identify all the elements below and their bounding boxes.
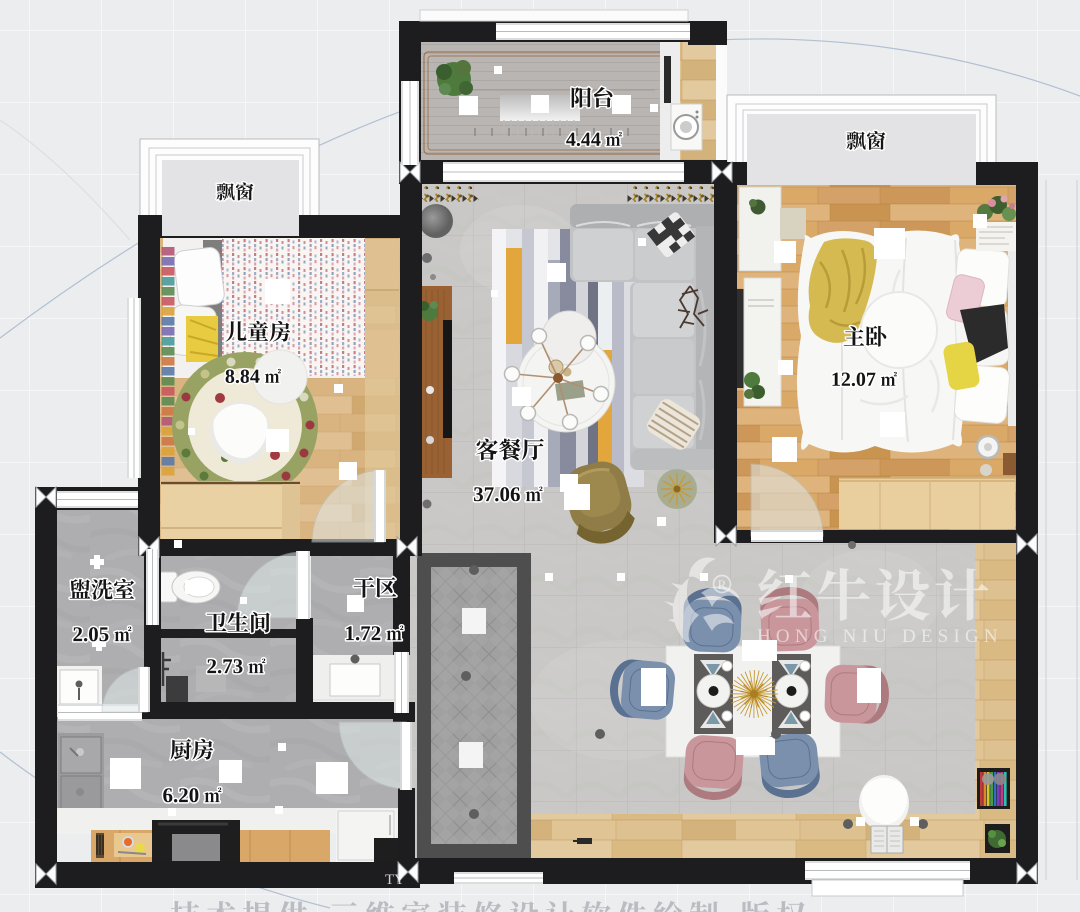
svg-text:TY: TY [385, 872, 405, 888]
svg-text:HONG NIU DESIGN: HONG NIU DESIGN [757, 626, 1003, 647]
svg-text:R: R [718, 577, 727, 592]
